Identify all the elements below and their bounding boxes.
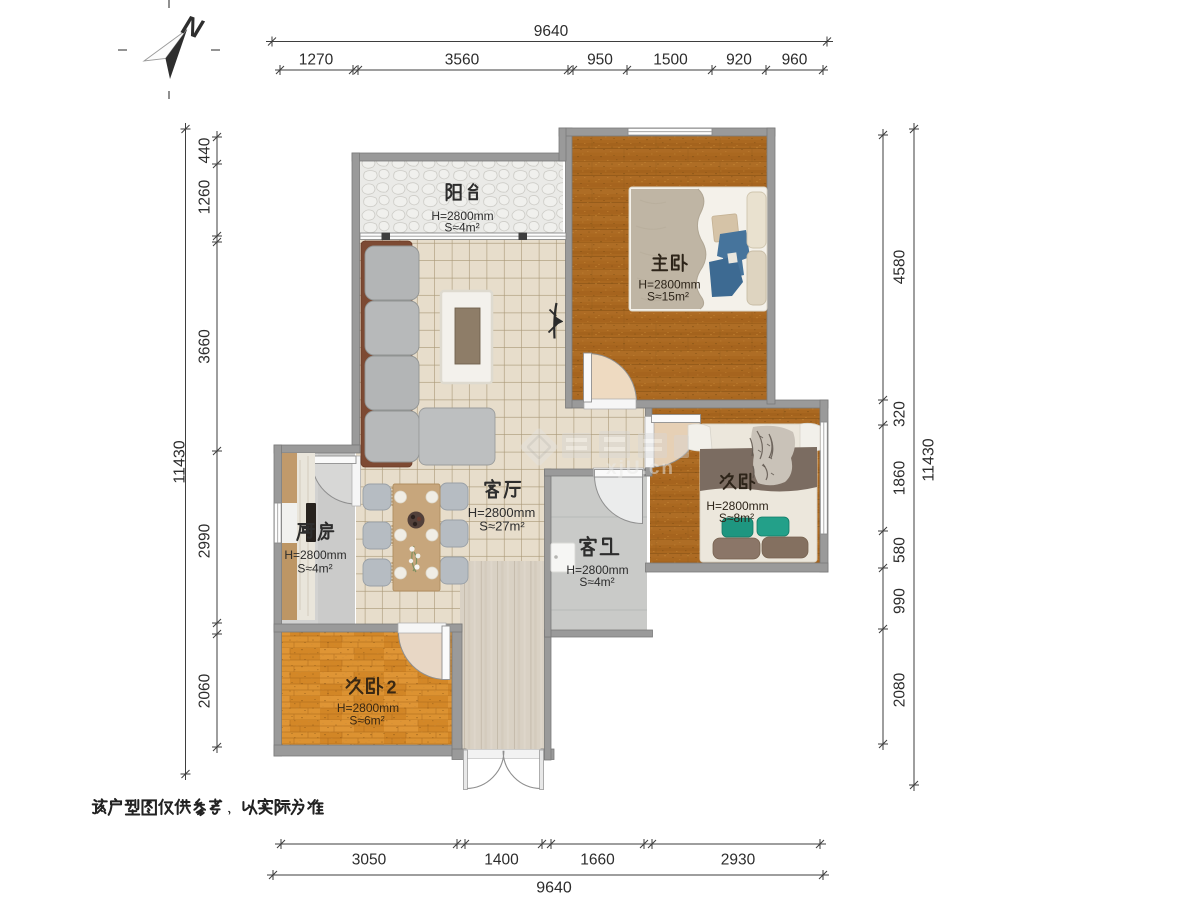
svg-text:1860: 1860 (892, 460, 909, 495)
svg-text:920: 920 (726, 52, 752, 69)
svg-text:9640: 9640 (536, 880, 572, 897)
svg-text:S≈6m²: S≈6m² (349, 714, 384, 728)
svg-text:S≈15m²: S≈15m² (647, 290, 689, 304)
svg-text:S≈4m²: S≈4m² (297, 562, 332, 576)
svg-text:H=2800mm: H=2800mm (284, 548, 346, 562)
svg-text:3660: 3660 (197, 329, 214, 364)
svg-text:4580: 4580 (892, 249, 909, 284)
svg-text:3050: 3050 (352, 852, 387, 869)
svg-text:1260: 1260 (197, 179, 214, 214)
svg-text:9640: 9640 (534, 23, 569, 40)
svg-text:950: 950 (587, 52, 613, 69)
svg-text:320: 320 (892, 401, 909, 427)
svg-text:S≈27m²: S≈27m² (479, 519, 525, 534)
svg-text:1660: 1660 (580, 852, 615, 869)
svg-text:2930: 2930 (721, 852, 756, 869)
svg-text:1500: 1500 (653, 52, 688, 69)
svg-text:960: 960 (782, 52, 808, 69)
svg-text:11430: 11430 (921, 438, 938, 481)
svg-text:2990: 2990 (197, 523, 214, 558)
svg-text:580: 580 (892, 537, 909, 563)
svg-text:S≈8m²: S≈8m² (719, 511, 754, 525)
svg-text:2: 2 (387, 678, 397, 698)
svg-text:S≈4m²: S≈4m² (444, 221, 479, 235)
svg-text:3560: 3560 (445, 52, 480, 69)
svg-text:xjU.cn: xjU.cn (606, 458, 675, 479)
svg-text:990: 990 (892, 588, 909, 614)
svg-text:1400: 1400 (484, 852, 519, 869)
svg-text:2080: 2080 (892, 672, 909, 707)
svg-text:2060: 2060 (197, 673, 214, 708)
svg-text:11430: 11430 (172, 440, 189, 483)
svg-text:S≈4m²: S≈4m² (579, 575, 614, 589)
svg-text:1270: 1270 (299, 52, 334, 69)
svg-text:440: 440 (197, 137, 214, 163)
